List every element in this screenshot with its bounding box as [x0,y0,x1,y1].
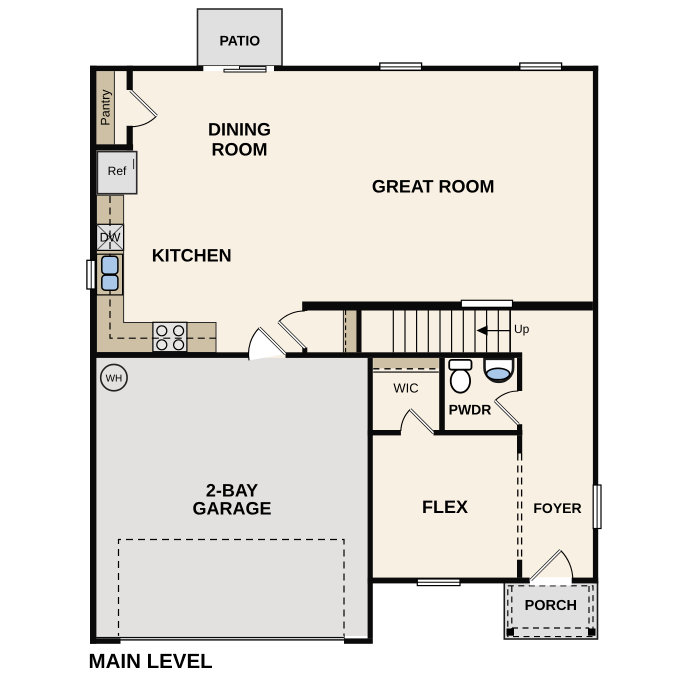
svg-text:Pantry: Pantry [99,89,113,126]
svg-text:PWDR: PWDR [449,402,492,418]
svg-text:PORCH: PORCH [525,598,577,614]
svg-text:2-BAY: 2-BAY [206,481,258,501]
svg-text:DINING: DINING [208,120,271,140]
svg-text:Ref: Ref [108,164,127,178]
svg-text:PATIO: PATIO [219,33,260,49]
svg-text:Up: Up [514,322,530,336]
svg-text:KITCHEN: KITCHEN [152,245,232,265]
svg-text:FLEX: FLEX [422,497,468,517]
svg-text:ROOM: ROOM [212,139,268,159]
svg-text:FOYER: FOYER [533,500,581,516]
svg-text:WIC: WIC [393,380,418,395]
svg-text:GARAGE: GARAGE [192,499,271,519]
svg-text:MAIN LEVEL: MAIN LEVEL [89,650,213,673]
svg-text:WH: WH [106,374,123,385]
svg-text:GREAT ROOM: GREAT ROOM [372,177,495,197]
